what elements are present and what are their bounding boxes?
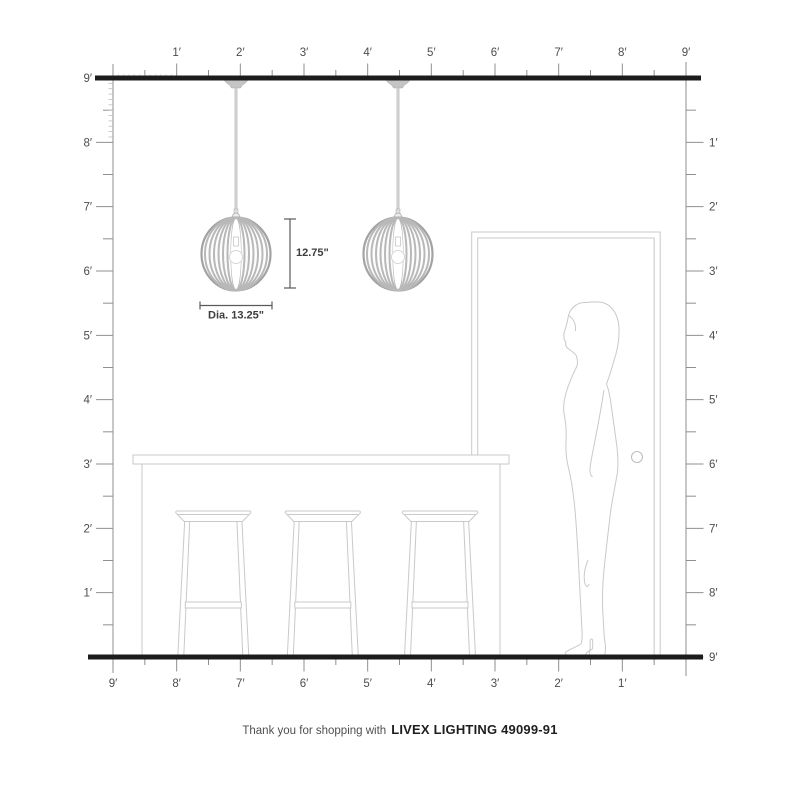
bottom-ruler-label-1ft: 1′ — [618, 678, 627, 690]
top-ruler-label-2ft: 2′ — [236, 47, 245, 59]
right-ruler-label-6ft: 6′ — [709, 459, 718, 471]
top-ruler-label-1ft: 1′ — [172, 47, 181, 59]
left-ruler-label-3ft: 3′ — [83, 459, 92, 471]
left-ruler-label-8ft: 8′ — [83, 137, 92, 149]
top-ruler-label-6ft: 6′ — [491, 47, 500, 59]
left-ruler-label-9ft: 9′ — [83, 73, 92, 85]
diameter-dimension-label: Dia. 13.25" — [208, 310, 264, 322]
bottom-ruler-label-4ft: 4′ — [427, 678, 436, 690]
top-ruler-label-8ft: 8′ — [618, 47, 627, 59]
right-ruler-label-5ft: 5′ — [709, 395, 718, 407]
pendant-light-left — [202, 79, 271, 291]
bottom-ruler-label-7ft: 7′ — [236, 678, 245, 690]
right-ruler-label-7ft: 7′ — [709, 523, 718, 535]
left-ruler: 9′8′7′6′5′4′3′2′1′ — [83, 73, 113, 625]
height-dimension-label: 12.75" — [296, 247, 329, 259]
top-ruler-label-3ft: 3′ — [300, 47, 309, 59]
left-ruler-label-6ft: 6′ — [83, 266, 92, 278]
top-ruler-label-4ft: 4′ — [363, 47, 372, 59]
left-ruler-label-4ft: 4′ — [83, 395, 92, 407]
pendant-light-right — [364, 79, 433, 291]
right-ruler-label-4ft: 4′ — [709, 330, 718, 342]
caption-brand: LIVEX LIGHTING 49099-91 — [391, 722, 557, 737]
door-knob — [632, 452, 643, 463]
caption-prefix: Thank you for shopping with — [242, 725, 386, 737]
island-body — [142, 464, 500, 657]
diagram-svg: 1′2′3′4′5′6′7′8′9′ 9′8′7′6′5′4′3′2′1′ 9′… — [0, 0, 800, 800]
right-ruler-label-9ft: 9′ — [709, 652, 718, 664]
bottom-ruler-label-6ft: 6′ — [300, 678, 309, 690]
right-ruler: 1′2′3′4′5′6′7′8′9′ — [686, 110, 718, 664]
bottom-ruler-label-9ft: 9′ — [109, 678, 118, 690]
bottom-ruler-label-2ft: 2′ — [554, 678, 563, 690]
left-ruler-label-7ft: 7′ — [83, 202, 92, 214]
right-ruler-label-3ft: 3′ — [709, 266, 718, 278]
kitchen-island — [133, 455, 509, 657]
bottom-ruler-label-8ft: 8′ — [172, 678, 181, 690]
top-ruler-label-7ft: 7′ — [554, 47, 563, 59]
left-ruler-label-5ft: 5′ — [83, 330, 92, 342]
right-ruler-label-2ft: 2′ — [709, 202, 718, 214]
left-ruler-label-2ft: 2′ — [83, 523, 92, 535]
bottom-ruler: 9′8′7′6′5′4′3′2′1′ — [109, 657, 654, 690]
top-ruler-label-5ft: 5′ — [427, 47, 436, 59]
caption: Thank you for shopping withLIVEX LIGHTIN… — [0, 722, 800, 737]
right-ruler-label-1ft: 1′ — [709, 137, 718, 149]
height-dimension: 12.75" — [284, 219, 329, 288]
top-ruler-label-9ft: 9′ — [682, 47, 691, 59]
right-ruler-label-8ft: 8′ — [709, 588, 718, 600]
product-dimension-diagram: 1′2′3′4′5′6′7′8′9′ 9′8′7′6′5′4′3′2′1′ 9′… — [0, 0, 800, 800]
left-ruler-label-1ft: 1′ — [83, 588, 92, 600]
bottom-ruler-label-5ft: 5′ — [363, 678, 372, 690]
bottom-ruler-label-3ft: 3′ — [491, 678, 500, 690]
diameter-dimension: Dia. 13.25" — [200, 302, 272, 322]
island-countertop — [133, 455, 509, 464]
top-ruler: 1′2′3′4′5′6′7′8′9′ — [118, 47, 690, 78]
